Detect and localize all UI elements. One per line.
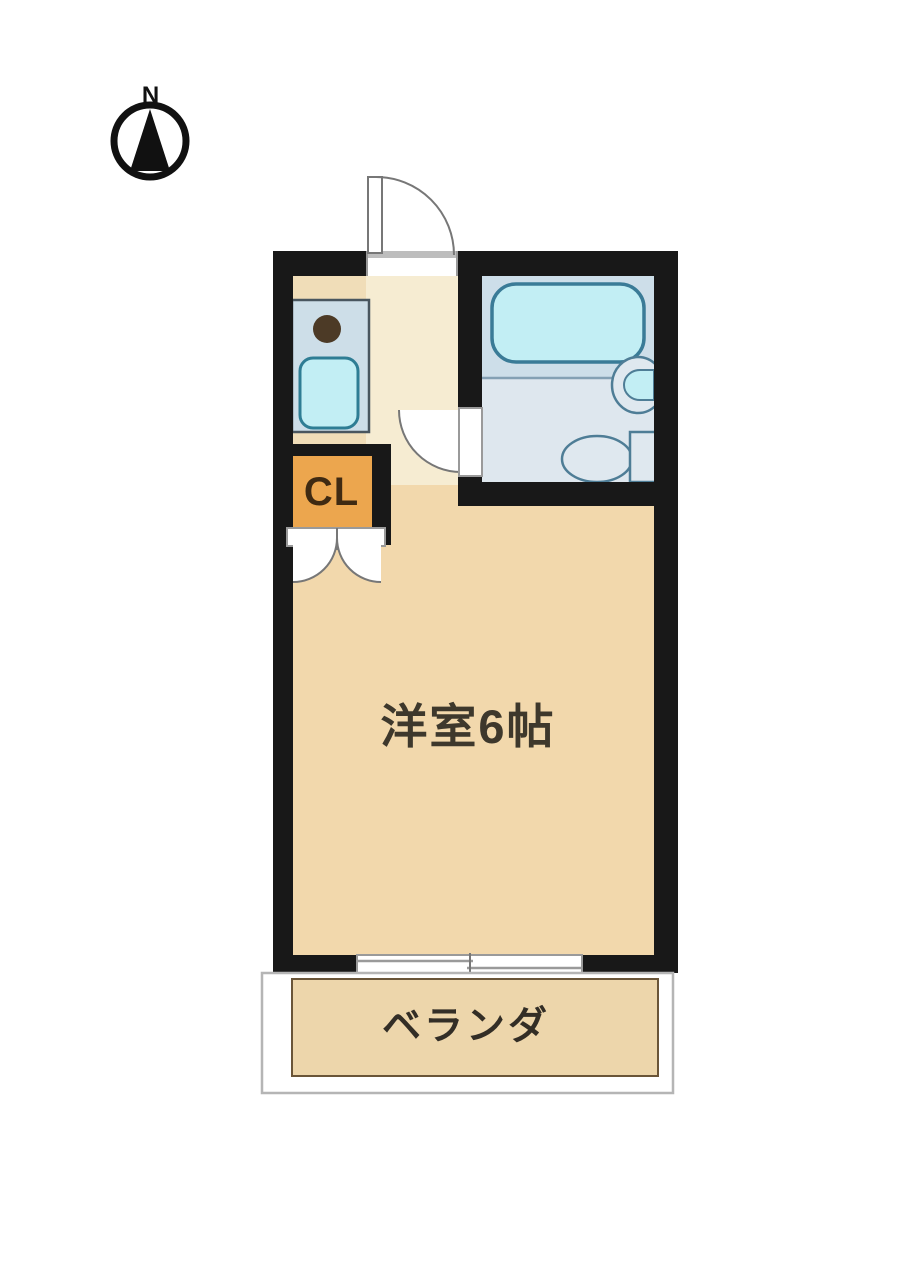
toilet-bowl xyxy=(562,436,632,482)
entrance-door-leaf xyxy=(368,177,382,253)
kitchen-sink xyxy=(300,358,358,428)
wall-top-right-segment xyxy=(458,251,678,276)
wall-bottom-right-segment xyxy=(582,955,678,973)
toilet-tank xyxy=(630,432,656,482)
entrance-door-arc xyxy=(376,177,454,255)
bathroom-wall-bottom xyxy=(458,482,678,506)
wall-left xyxy=(273,251,293,973)
bathroom-door-leaf xyxy=(459,408,482,476)
floor-plan-page: N CL 洋室6帖 ベランダ xyxy=(0,0,905,1280)
main-room-label: 洋室6帖 xyxy=(318,703,618,750)
bathroom-wall-left-upper xyxy=(458,251,482,410)
closet-label: CL xyxy=(291,472,372,512)
wall-bottom-left-segment xyxy=(273,955,357,973)
balcony-label: ベランダ xyxy=(316,1007,616,1046)
wash-basin-bowl xyxy=(624,370,654,400)
bathtub xyxy=(492,284,644,362)
wall-right xyxy=(654,251,678,973)
compass-north-arrow-icon xyxy=(130,109,170,171)
floor-plan-drawing xyxy=(0,0,905,1280)
compass-north-label: N xyxy=(128,84,174,108)
stove-burner-icon xyxy=(313,315,341,343)
